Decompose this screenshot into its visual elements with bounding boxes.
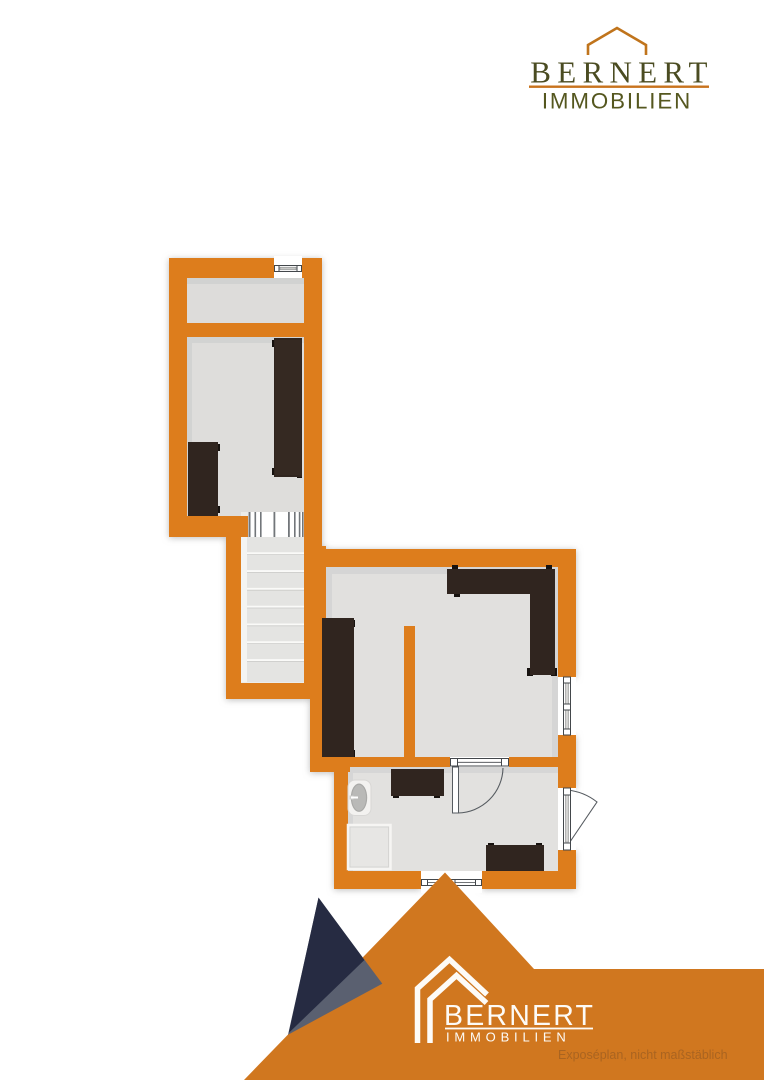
svg-text:Exposéplan, nicht maßstäblich: Exposéplan, nicht maßstäblich — [558, 1048, 728, 1062]
svg-text:BERNERT: BERNERT — [444, 1000, 595, 1032]
svg-text:BERNERT: BERNERT — [530, 55, 713, 90]
svg-text:IMMOBILIEN: IMMOBILIEN — [542, 89, 692, 114]
svg-text:IMMOBILIEN: IMMOBILIEN — [446, 1030, 571, 1045]
